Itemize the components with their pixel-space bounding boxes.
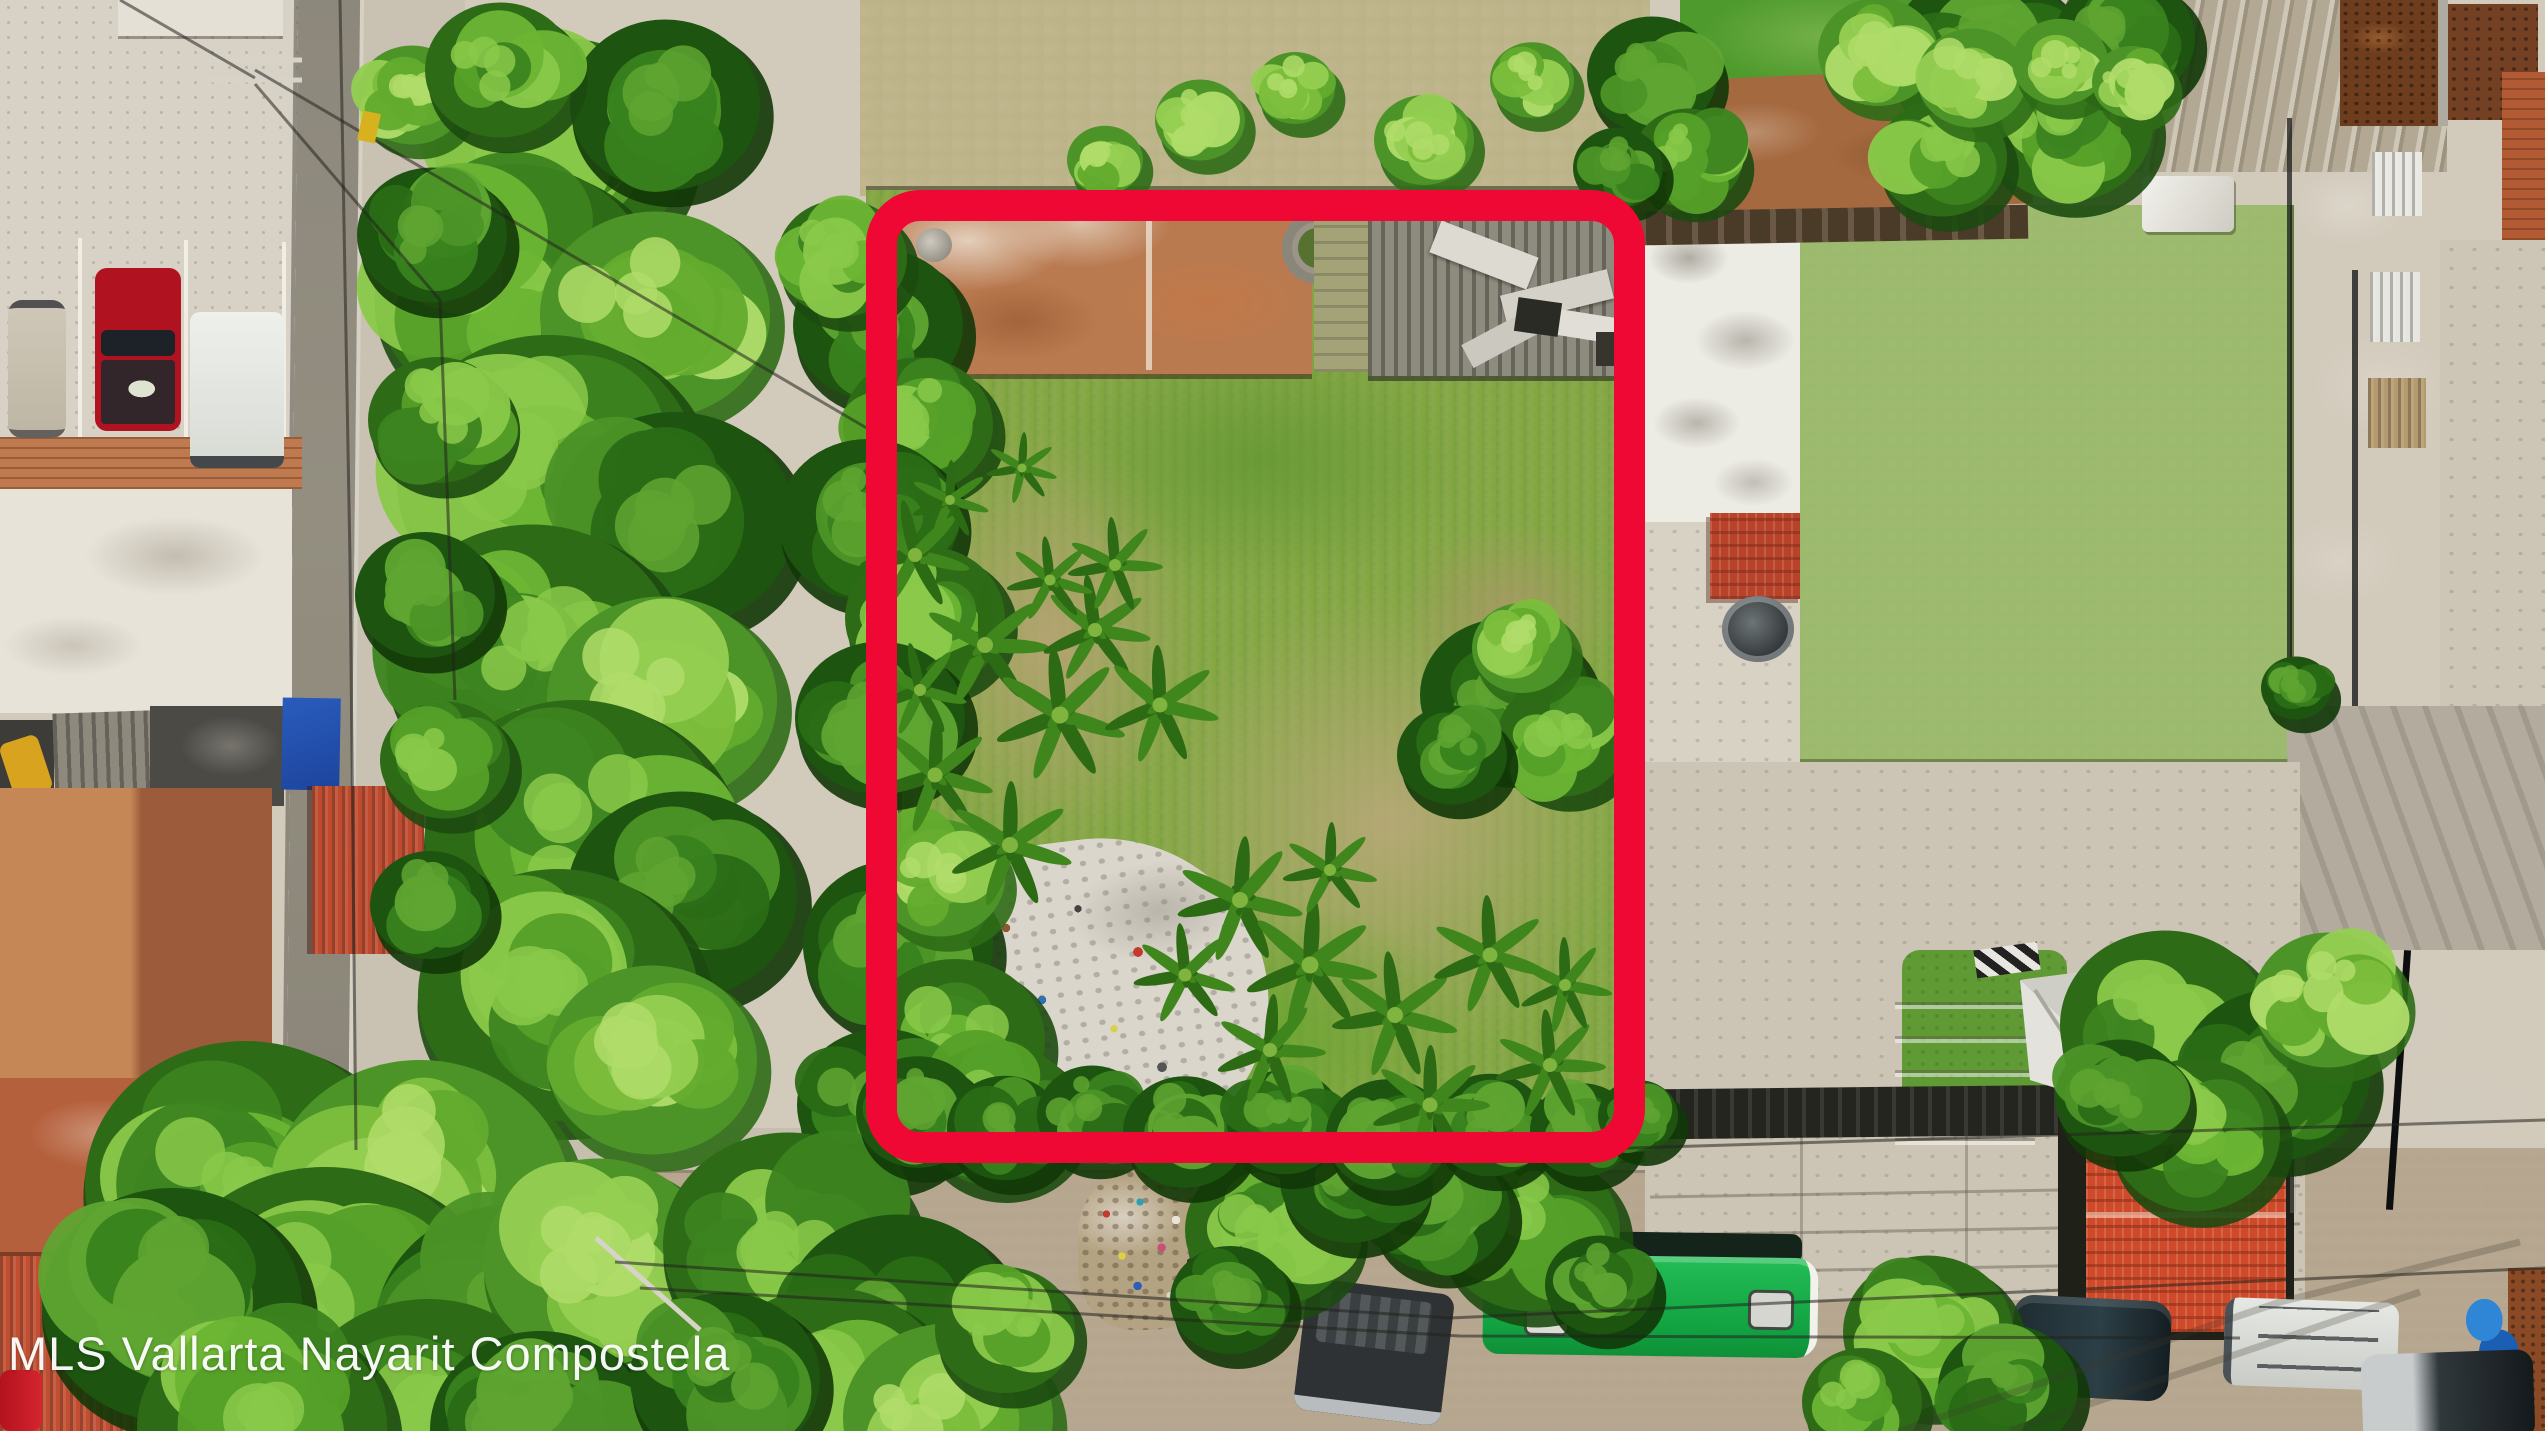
yellow-cart [357, 110, 381, 143]
property-boundary-highlight [866, 190, 1645, 1163]
aerial-photo: MLS Vallarta Nayarit Compostela [0, 0, 2545, 1431]
watermark-text: MLS Vallarta Nayarit Compostela [8, 1326, 730, 1381]
